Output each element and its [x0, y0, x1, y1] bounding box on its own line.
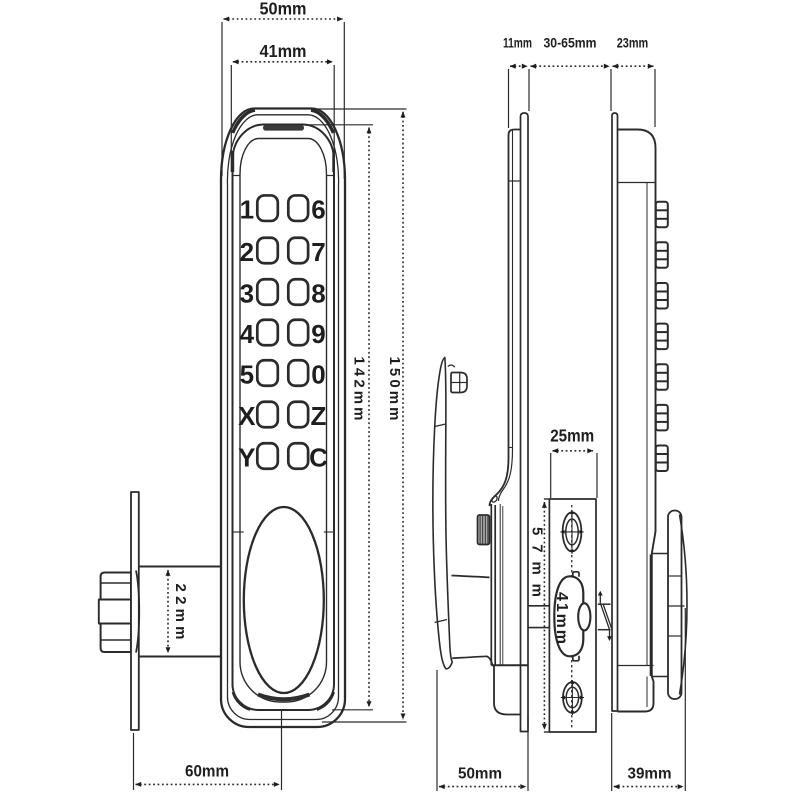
svg-text:Z: Z	[311, 401, 327, 431]
svg-text:9: 9	[311, 319, 325, 349]
svg-text:50mm: 50mm	[458, 766, 502, 783]
svg-text:8: 8	[311, 279, 325, 309]
svg-text:50mm: 50mm	[260, 0, 307, 19]
svg-text:11mm: 11mm	[503, 35, 532, 51]
svg-text:30-65mm: 30-65mm	[544, 35, 597, 51]
svg-text:0: 0	[311, 360, 325, 390]
svg-text:X: X	[238, 401, 256, 431]
svg-text:6: 6	[311, 195, 325, 225]
svg-text:39mm: 39mm	[628, 766, 672, 783]
svg-text:4: 4	[240, 319, 255, 349]
svg-text:5: 5	[240, 360, 254, 390]
svg-text:C: C	[309, 443, 328, 473]
svg-text:1: 1	[240, 195, 254, 225]
svg-text:60mm: 60mm	[185, 763, 229, 781]
svg-text:7: 7	[311, 237, 325, 267]
svg-text:2: 2	[240, 237, 254, 267]
svg-text:25mm: 25mm	[550, 426, 594, 446]
svg-text:3: 3	[240, 279, 254, 309]
svg-text:41mm: 41mm	[260, 41, 307, 61]
svg-text:41mm: 41mm	[553, 592, 570, 644]
svg-text:23mm: 23mm	[617, 35, 649, 51]
svg-text:Y: Y	[238, 443, 255, 473]
